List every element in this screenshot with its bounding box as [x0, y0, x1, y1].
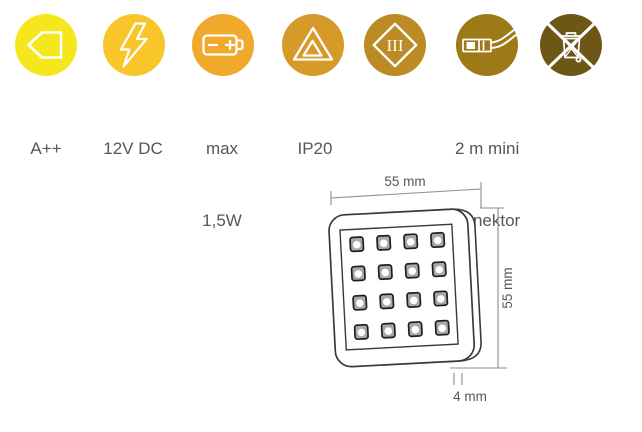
led-chip [404, 234, 418, 249]
label-voltage: 12V DC [87, 89, 179, 209]
led-chip [432, 262, 446, 277]
led-chip [431, 233, 445, 248]
width-dimension-label: 55 mm [384, 174, 425, 189]
label-line: IP20 [269, 137, 361, 161]
class-iii-text: III [387, 36, 404, 55]
badge-protection-class: III [364, 14, 426, 76]
label-line: A++ [0, 137, 92, 161]
led-chip [434, 291, 448, 306]
thickness-dimension: 4 mm [453, 373, 487, 404]
height-dimension-label: 55 mm [500, 267, 515, 308]
led-chip [354, 325, 368, 340]
led-chip [350, 237, 364, 252]
thickness-dimension-label: 4 mm [453, 389, 487, 404]
product-spec-sheet: III [0, 0, 642, 432]
dimension-drawing: 55 mm 55 mm 4 mm [310, 166, 530, 416]
badge-cable [456, 14, 518, 76]
led-panel [328, 208, 482, 367]
label-line: 12V DC [87, 137, 179, 161]
label-line: 1,5W [176, 209, 268, 233]
badge-weee [540, 14, 602, 76]
led-chip [351, 266, 365, 281]
badge-max-power [192, 14, 254, 76]
badge-circle [456, 14, 518, 76]
width-dimension: 55 mm [331, 174, 481, 208]
badge-circle [103, 14, 165, 76]
led-chip [378, 265, 392, 280]
badge-ip-rating [282, 14, 344, 76]
led-chip [377, 235, 391, 250]
label-line: max [176, 137, 268, 161]
label-energy-class: A++ [0, 89, 92, 209]
badge-circle [192, 14, 254, 76]
led-chip [353, 295, 367, 310]
badge-energy-class [15, 14, 77, 76]
led-chip [408, 322, 422, 337]
badge-circle [15, 14, 77, 76]
led-chip [407, 293, 421, 308]
badge-circle [282, 14, 344, 76]
led-chip [435, 320, 449, 335]
led-chip [380, 294, 394, 309]
led-chip [381, 323, 395, 338]
label-line: 2 m mini [455, 137, 520, 161]
label-max-power: max 1,5W [176, 89, 268, 281]
led-chip [405, 263, 419, 278]
badge-voltage [103, 14, 165, 76]
